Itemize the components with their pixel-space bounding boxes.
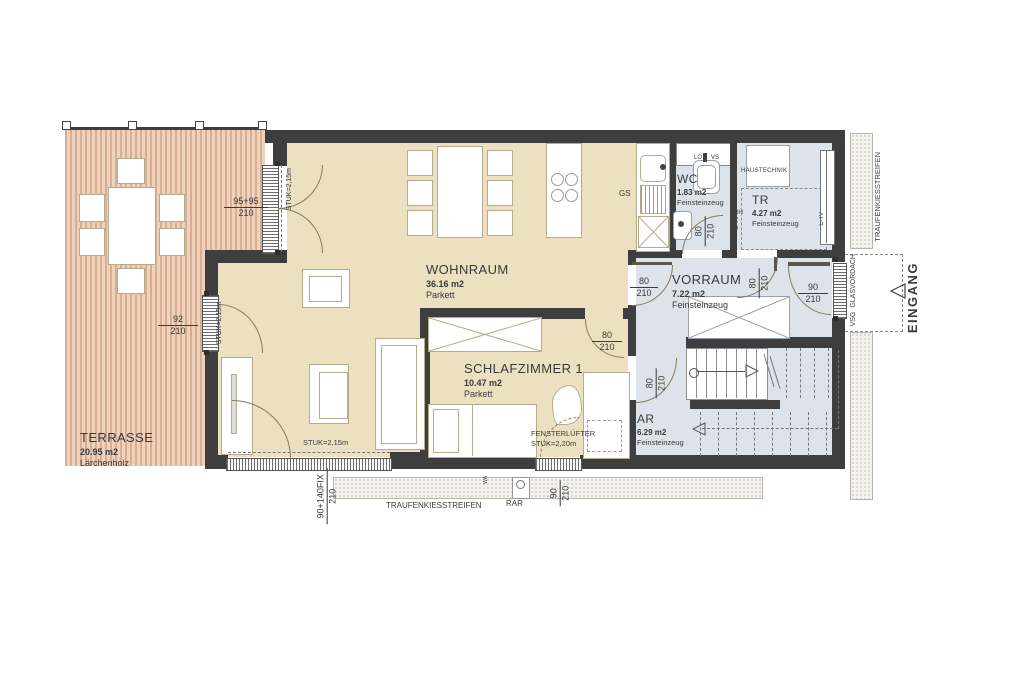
kitchen-appliance	[638, 216, 669, 248]
room-area: 4.27 m2	[752, 209, 799, 218]
stair-up-arrow	[745, 364, 759, 378]
dining-chair	[407, 150, 433, 176]
dim-height: 210	[630, 288, 658, 299]
terrace-railing	[63, 127, 266, 130]
rar-label: RAR	[506, 499, 523, 508]
room-name: WOHNRAUM	[426, 262, 509, 277]
door-jamb	[275, 250, 280, 255]
room-label-tr: TR 4.27 m2 Feinsteinzeug	[752, 193, 799, 228]
room-floor: Feinsteinzeug	[672, 300, 741, 310]
stuk-label-terrace-door: STUK=2,15m	[286, 168, 293, 210]
dim-width: 90	[549, 480, 561, 506]
gs-label: GS	[619, 189, 631, 198]
stair-tread-dashed	[786, 348, 787, 398]
dim-height: 210	[760, 268, 771, 298]
dim-width: 80	[694, 216, 706, 246]
room-label-terrasse: TERRASSE 20.95 m2 Lärchenholz	[80, 430, 153, 468]
haustechnik-label: HAUSTECHNIK	[741, 168, 787, 174]
stair-tread	[726, 348, 727, 398]
stair-tread-dashed	[754, 412, 755, 456]
dim-height: 210	[592, 342, 622, 353]
dim-height: 210	[224, 208, 268, 219]
dining-chair	[487, 210, 513, 236]
stair-tread-dashed	[718, 412, 719, 456]
dim-width: 80	[645, 368, 657, 398]
dim-width: 90+140FIX	[316, 468, 328, 524]
cooktop-burner	[551, 173, 564, 186]
room-name: TR	[752, 193, 799, 207]
room-label-wohnraum: WOHNRAUM 36.16 m2 Parkett	[426, 262, 509, 300]
room-area: 1.83 m2	[677, 188, 724, 197]
dim-height: 210	[158, 326, 198, 337]
dim-width: 92	[158, 314, 198, 326]
dining-table	[437, 146, 483, 238]
dim-height: 210	[798, 294, 828, 305]
dim-door-schlafzimmer: 80 210	[592, 330, 622, 353]
terrace-table	[108, 187, 156, 265]
terrace-chair	[117, 268, 145, 294]
dim-south-window: 90+140FIX 210	[316, 468, 339, 524]
haustechnik-unit	[746, 145, 790, 187]
dining-chair	[407, 210, 433, 236]
window-dash-line	[228, 452, 390, 453]
etv-label-left: E-TV	[734, 216, 740, 230]
room-floor: Parkett	[464, 389, 583, 399]
eingang-label: EINGANG	[905, 262, 920, 333]
dim-width: 80	[592, 330, 622, 342]
south-window-bedroom	[535, 458, 582, 471]
railing-post	[62, 121, 71, 130]
railing-post	[128, 121, 137, 130]
dim-width: 90	[798, 282, 828, 294]
wall-schlaf-north-b	[623, 308, 636, 319]
room-name: WC	[677, 172, 724, 186]
tr-east-window-pane	[826, 150, 827, 243]
stair-tread-dashed	[790, 412, 791, 456]
dim-height: 210	[657, 368, 668, 398]
gravel-strip-east-lower	[850, 332, 873, 500]
room-floor: Parkett	[426, 290, 509, 300]
bedroom-wardrobe	[428, 317, 542, 352]
room-label-vorraum: VORRAUM 7.22 m2 Feinsteinzeug	[672, 272, 741, 310]
armchair-seat	[309, 276, 342, 302]
stair-tread-dashed	[828, 348, 829, 398]
railing-post	[195, 121, 204, 130]
wall-wc-tr	[730, 143, 737, 250]
sofa-seat	[381, 345, 417, 444]
coffee-table-inner	[319, 372, 348, 419]
wall-west-lower-b	[205, 350, 218, 469]
floor-plan: HAUSTECHNIK	[0, 0, 1024, 683]
room-area: 10.47 m2	[464, 378, 583, 388]
terrace-chair	[79, 228, 105, 256]
door-jamb	[275, 161, 280, 166]
wohnraum-vorraum-door-leaf	[632, 262, 672, 265]
stair-tread	[736, 348, 737, 398]
dim-terrace-door: 95+95 210	[224, 196, 268, 219]
tr-east-window	[820, 150, 835, 245]
cooktop-burner	[565, 189, 578, 202]
dishwasher	[640, 185, 666, 214]
glasvordach-label: VSG GLASVORDACH	[850, 254, 857, 326]
dim-entry-door: 90 210	[798, 282, 828, 305]
cooktop-burner	[565, 173, 578, 186]
door-jamb	[833, 316, 838, 321]
room-name: TERRASSE	[80, 430, 153, 445]
tr-door-leaf	[774, 257, 777, 271]
stair-walkline-start	[689, 368, 699, 378]
wall-vorraum-north-b	[722, 250, 737, 258]
dining-chair	[487, 150, 513, 176]
wc-tap-icon	[703, 153, 707, 162]
door-jamb	[833, 257, 838, 262]
wall-schlaf-ar-a	[628, 319, 636, 356]
wall-west-lower-a	[205, 250, 218, 295]
dim-west-door: 92 210	[158, 314, 198, 337]
room-floor: Feinsteinzeug	[752, 219, 799, 228]
stuk-label-west-door: STUK=2,15m	[216, 302, 223, 344]
stair-tread	[706, 348, 707, 398]
dim-width: 80	[748, 268, 760, 298]
door-jamb	[204, 291, 209, 296]
dim-bedroom-window: 90 210	[549, 480, 572, 506]
room-floor: Feinsteinzeug	[677, 198, 724, 207]
room-floor: Lärchenholz	[80, 458, 153, 468]
lo-label: LO	[694, 155, 702, 161]
entry-door-leaf	[788, 262, 830, 266]
stair-tread-dashed	[826, 412, 827, 456]
dim-height: 210	[561, 480, 572, 506]
dining-chair	[407, 180, 433, 206]
fensterluefter-label-1: FENSTERLÜFTER	[531, 429, 595, 438]
wa-label: WA	[483, 476, 489, 484]
stair-walkline-lower	[702, 428, 838, 429]
dim-door-tr: 80 210	[748, 268, 771, 298]
room-area: 20.95 m2	[80, 447, 153, 457]
cooktop-burner	[551, 189, 564, 202]
bed-blanket-line	[472, 404, 473, 456]
room-area: 7.22 m2	[672, 289, 741, 299]
terrace-chair	[79, 194, 105, 222]
stair-walkline-turn	[838, 350, 839, 429]
stair-tread-dashed	[814, 348, 815, 398]
dim-door-wohnraum-vorraum: 80 210	[630, 276, 658, 299]
room-name: AR	[637, 412, 684, 426]
dim-width: 95+95	[224, 196, 268, 208]
dim-door-wc: 80 210	[694, 216, 717, 246]
dining-chair	[487, 180, 513, 206]
traufenkies-label-east: TRAUFENKIESSTREIFEN	[873, 152, 882, 242]
room-label-schlafzimmer: SCHLAFZIMMER 1 10.47 m2 Parkett	[464, 361, 583, 399]
stair-tread-dashed	[808, 412, 809, 456]
terrace-door-chord	[281, 165, 282, 252]
terrace-chair	[159, 194, 185, 222]
terrace-chair	[159, 228, 185, 256]
faucet-icon	[660, 164, 666, 170]
gravel-strip-east-upper	[850, 133, 873, 249]
room-area: 6.29 m2	[637, 428, 684, 437]
railing-post	[258, 121, 267, 130]
wc-toilet-flush	[678, 221, 684, 227]
bed-pillow	[433, 409, 459, 453]
stair-walkline	[697, 371, 745, 372]
room-label-ar: AR 6.29 m2 Feinsteinzeug	[637, 412, 684, 447]
rar-drain	[516, 480, 525, 489]
room-floor: Feinsteinzeug	[637, 438, 684, 447]
south-window-large	[226, 458, 392, 471]
dim-width: 80	[630, 276, 658, 288]
stair-tread-dashed	[800, 348, 801, 398]
stair-tread	[716, 348, 717, 398]
stair-tread-dashed	[772, 412, 773, 456]
room-label-wc: WC 1.83 m2 Feinsteinzeug	[677, 172, 724, 207]
room-name: VORRAUM	[672, 272, 741, 287]
stair-rail-wall	[690, 400, 780, 409]
door-jamb	[204, 350, 209, 355]
vs-label: VS	[711, 155, 719, 161]
traufenkies-label-south: TRAUFENKIESSTREIFEN	[386, 501, 482, 510]
wall-vorraum-north-c	[777, 250, 832, 258]
room-name: SCHLAFZIMMER 1	[464, 361, 583, 376]
wall-north	[265, 130, 845, 143]
stuk-label-south-door: STUK=2,15m	[303, 438, 348, 447]
fensterluefter-label-2: STUK=2,20m	[531, 439, 576, 448]
room-area: 36.16 m2	[426, 279, 509, 289]
stair-down-arrow	[692, 422, 706, 436]
terrace-chair	[117, 158, 145, 184]
dim-height: 210	[706, 216, 717, 246]
dim-height: 210	[328, 468, 339, 524]
etv-label-right: E-TV	[819, 212, 825, 226]
dim-door-ar: 80 210	[645, 368, 668, 398]
stair-tread-dashed	[736, 412, 737, 456]
